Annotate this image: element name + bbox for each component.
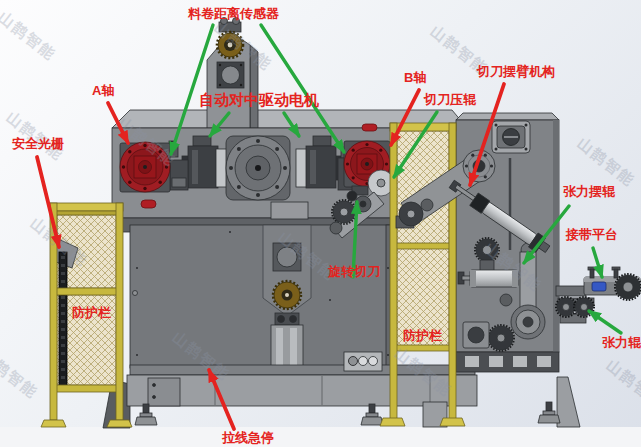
arrow-roll-distance-sensor-right (261, 25, 344, 152)
label-pull-wire-emergency-stop: 拉线急停 (222, 431, 274, 445)
arrow-pull-wire-emergency-stop (209, 370, 234, 429)
arrow-splicing-platform (593, 248, 602, 277)
arrow-safety-light-curtain (37, 157, 59, 247)
arrow-drive-motor-left (210, 113, 229, 136)
arrow-drive-motor-right (284, 113, 299, 136)
label-rotary-cutter: 旋转切刀 (328, 265, 380, 279)
arrow-cutter-pressure-roller (394, 112, 437, 177)
label-b-axis: B轴 (404, 71, 426, 85)
label-cutter-swing-arm-mechanism: 切刀摆臂机构 (477, 65, 555, 79)
label-safety-light-curtain: 安全光栅 (12, 137, 64, 151)
arrow-tension-roller (589, 311, 621, 333)
label-a-axis: A轴 (92, 84, 114, 98)
machine-diagram: 山鹊智能 山鹊智能 山鹊智能 山鹊智能 山鹊智能 山鹊智能 山鹊智能 山鹊智能 … (0, 0, 641, 447)
label-tension-swing-roller: 张力摆辊 (563, 185, 615, 199)
label-cutter-pressure-roller: 切刀压辊 (424, 93, 476, 107)
arrow-roll-distance-sensor-left (171, 25, 213, 154)
label-splicing-platform: 接带平台 (566, 228, 618, 242)
arrow-b-axis (391, 90, 419, 145)
arrow-tension-swing-roller (524, 206, 569, 263)
arrow-a-axis (108, 103, 128, 143)
label-tension-roller: 张力辊 (602, 336, 641, 350)
label-material-roll-distance-sensor: 料卷距离传感器 (188, 7, 279, 21)
label-protective-fence-left: 防护栏 (72, 306, 111, 320)
label-protective-fence-right: 防护栏 (403, 329, 442, 343)
label-auto-centering-drive-motor: 自动对中驱动电机 (199, 92, 319, 108)
